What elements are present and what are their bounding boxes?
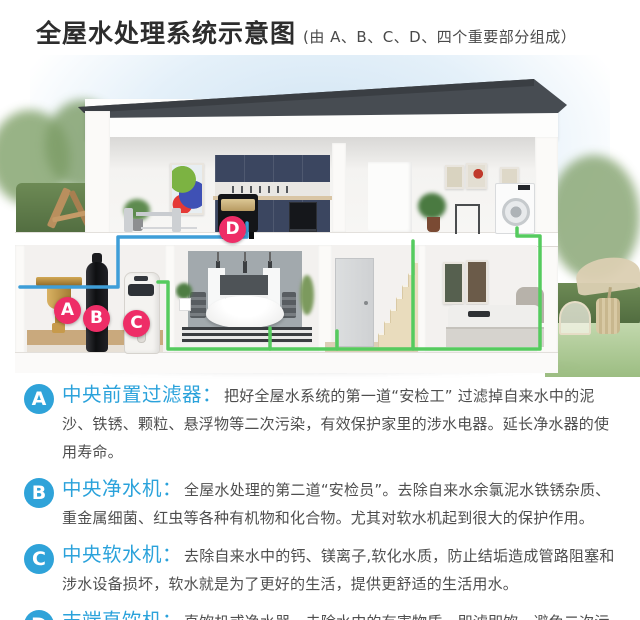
marker-b: B bbox=[83, 305, 110, 332]
legend-text-b: 中央净水机：全屋水处理的第二道“安检员”。去除自来水余氯泥水铁锈杂质、重金属细菌… bbox=[62, 475, 620, 532]
softened-water-pipe bbox=[158, 228, 540, 349]
title-row: 全屋水处理系统示意图(由 A、B、C、D、四个重要部分组成） bbox=[36, 14, 576, 50]
badge-b: B bbox=[24, 478, 54, 508]
legend-item-c: C 中央软水机：去除自来水中的钙、镁离子,软化水质，防止结垢造成管路阻塞和涉水设… bbox=[0, 541, 640, 598]
legend-text-a: 中央前置过滤器：把好全屋水系统的第一道“安检工” 过滤掉自来水中的泥沙、铁锈、颗… bbox=[62, 381, 620, 466]
legend-heading-c: 中央软水机： bbox=[62, 543, 182, 566]
badge-d: D bbox=[24, 610, 54, 620]
page-title: 全屋水处理系统示意图 bbox=[36, 19, 296, 48]
infographic: 全屋水处理系统示意图(由 A、B、C、D、四个重要部分组成） bbox=[0, 0, 640, 620]
legend-text-c: 中央软水机：去除自来水中的钙、镁离子,软化水质，防止结垢造成管路阻塞和涉水设备损… bbox=[62, 541, 620, 598]
badge-c: C bbox=[24, 544, 54, 574]
marker-a: A bbox=[54, 297, 81, 324]
legend-text-d: 末端直饮机：直饮机或净水器，去除水中的有害物质，即滤即饮，避免二次污染 bbox=[62, 607, 620, 620]
marker-c: C bbox=[123, 310, 150, 337]
legend-item-b: B 中央净水机：全屋水处理的第二道“安检员”。去除自来水余氯泥水铁锈杂质、重金属… bbox=[0, 475, 640, 532]
legend-item-d: D 末端直饮机：直饮机或净水器，去除水中的有害物质，即滤即饮，避免二次污染 bbox=[0, 607, 640, 620]
house-illustration: A B C D bbox=[0, 55, 640, 380]
page-subtitle: (由 A、B、C、D、四个重要部分组成） bbox=[303, 28, 576, 46]
legend: A 中央前置过滤器：把好全屋水系统的第一道“安检工” 过滤掉自来水中的泥沙、铁锈… bbox=[0, 381, 640, 620]
legend-item-a: A 中央前置过滤器：把好全屋水系统的第一道“安检工” 过滤掉自来水中的泥沙、铁锈… bbox=[0, 381, 640, 466]
legend-heading-d: 末端直饮机： bbox=[62, 609, 182, 620]
marker-d: D bbox=[219, 216, 246, 243]
main-water-pipe bbox=[20, 223, 247, 287]
legend-heading-a: 中央前置过滤器： bbox=[62, 383, 222, 406]
badge-a: A bbox=[24, 384, 54, 414]
legend-heading-b: 中央净水机： bbox=[62, 477, 182, 500]
